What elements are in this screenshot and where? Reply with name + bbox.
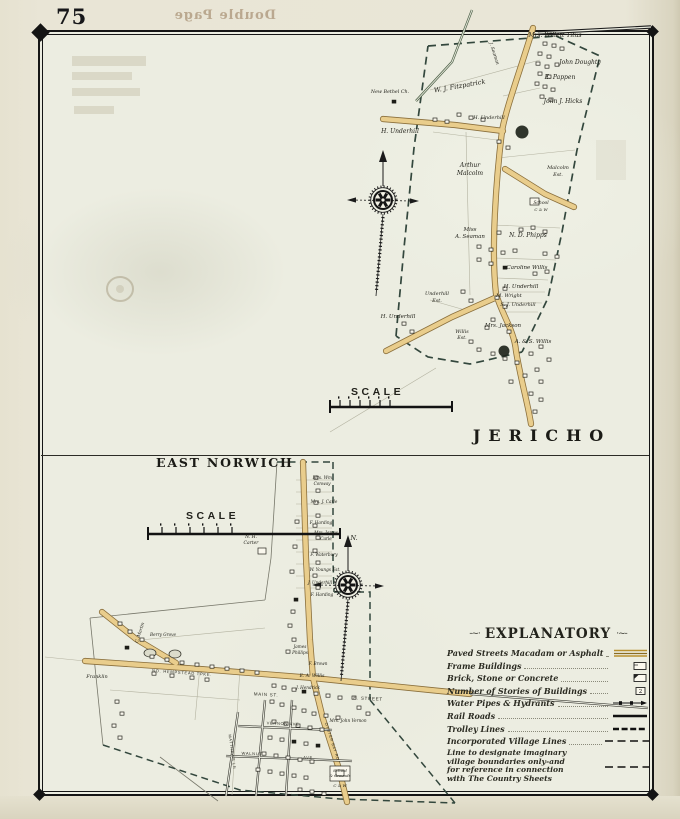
legend-symbol-frame xyxy=(611,661,649,671)
legend-items: Paved Streets Macadam or AsphaltFrame Bu… xyxy=(447,648,649,746)
frame-corner-ornament xyxy=(31,23,49,41)
legend-item-label: Number of Stories of Buildings xyxy=(447,686,587,696)
legend-title-row: -~· EXPLANATORY ·~- xyxy=(447,623,649,642)
legend-item: Frame Buildings xyxy=(447,661,649,671)
legend-symbol-brick xyxy=(611,673,649,683)
bleed-through-text: Double Page xyxy=(96,8,276,23)
legend-item-label: Frame Buildings xyxy=(447,661,521,671)
legend-item: Water Pipes & Hydrants xyxy=(447,698,649,708)
page-number: 75 xyxy=(56,4,87,29)
jericho-scale-label: SCALE xyxy=(351,386,404,398)
legend-item-label: Trolley Lines xyxy=(447,724,505,734)
legend-symbol-rail xyxy=(611,711,649,721)
atlas-page: 75 Double Page xyxy=(0,0,680,819)
legend-note-line: with The Country Sheets xyxy=(447,775,601,784)
east-norwich-scale-label: SCALE xyxy=(186,510,239,522)
legend-flourish: ·~- xyxy=(616,629,626,639)
explanatory-legend: -~· EXPLANATORY ·~- Paved Streets Macada… xyxy=(447,623,649,784)
legend-symbol-trolley xyxy=(611,724,649,734)
frame-corner-ornament xyxy=(646,25,659,38)
legend-item: Brick, Stone or Concrete xyxy=(447,673,649,683)
legend-leader xyxy=(590,687,608,694)
jericho-title: JERICHO xyxy=(452,426,632,445)
legend-note: Line to designate imaginaryvillage bound… xyxy=(447,749,649,783)
legend-item: Number of Stories of Buildings2 xyxy=(447,686,649,696)
legend-leader xyxy=(569,738,602,745)
legend-item-label: Water Pipes & Hydrants xyxy=(447,698,555,708)
legend-title: EXPLANATORY xyxy=(485,626,611,642)
legend-item-label: Paved Streets Macadam or Asphalt xyxy=(447,648,603,658)
page-edge-shading xyxy=(0,796,680,819)
legend-symbol-boundary-note xyxy=(605,757,649,776)
svg-text:2: 2 xyxy=(639,689,643,695)
legend-item-label: Incorporated Village Lines xyxy=(447,736,566,746)
legend-leader xyxy=(524,662,608,669)
legend-symbol-village xyxy=(605,736,649,746)
legend-item: Rail Roads xyxy=(447,711,649,721)
legend-symbol-paved xyxy=(611,648,649,658)
legend-symbol-stories: 2 xyxy=(611,686,649,696)
legend-item: Trolley Lines xyxy=(447,724,649,734)
legend-leader xyxy=(561,675,608,682)
legend-flourish: -~· xyxy=(469,629,479,639)
legend-item-label: Rail Roads xyxy=(447,711,495,721)
legend-note-text: Line to designate imaginaryvillage bound… xyxy=(447,749,601,783)
legend-item: Paved Streets Macadam or Asphalt xyxy=(447,648,649,658)
east-norwich-title: EAST NORWICH xyxy=(156,455,294,470)
legend-leader xyxy=(558,700,608,707)
legend-symbol-water xyxy=(611,698,649,708)
legend-leader xyxy=(508,725,608,732)
legend-item: Incorporated Village Lines xyxy=(447,736,649,746)
legend-leader xyxy=(498,712,608,719)
legend-item-label: Brick, Stone or Concrete xyxy=(447,673,558,683)
legend-leader xyxy=(606,650,608,657)
